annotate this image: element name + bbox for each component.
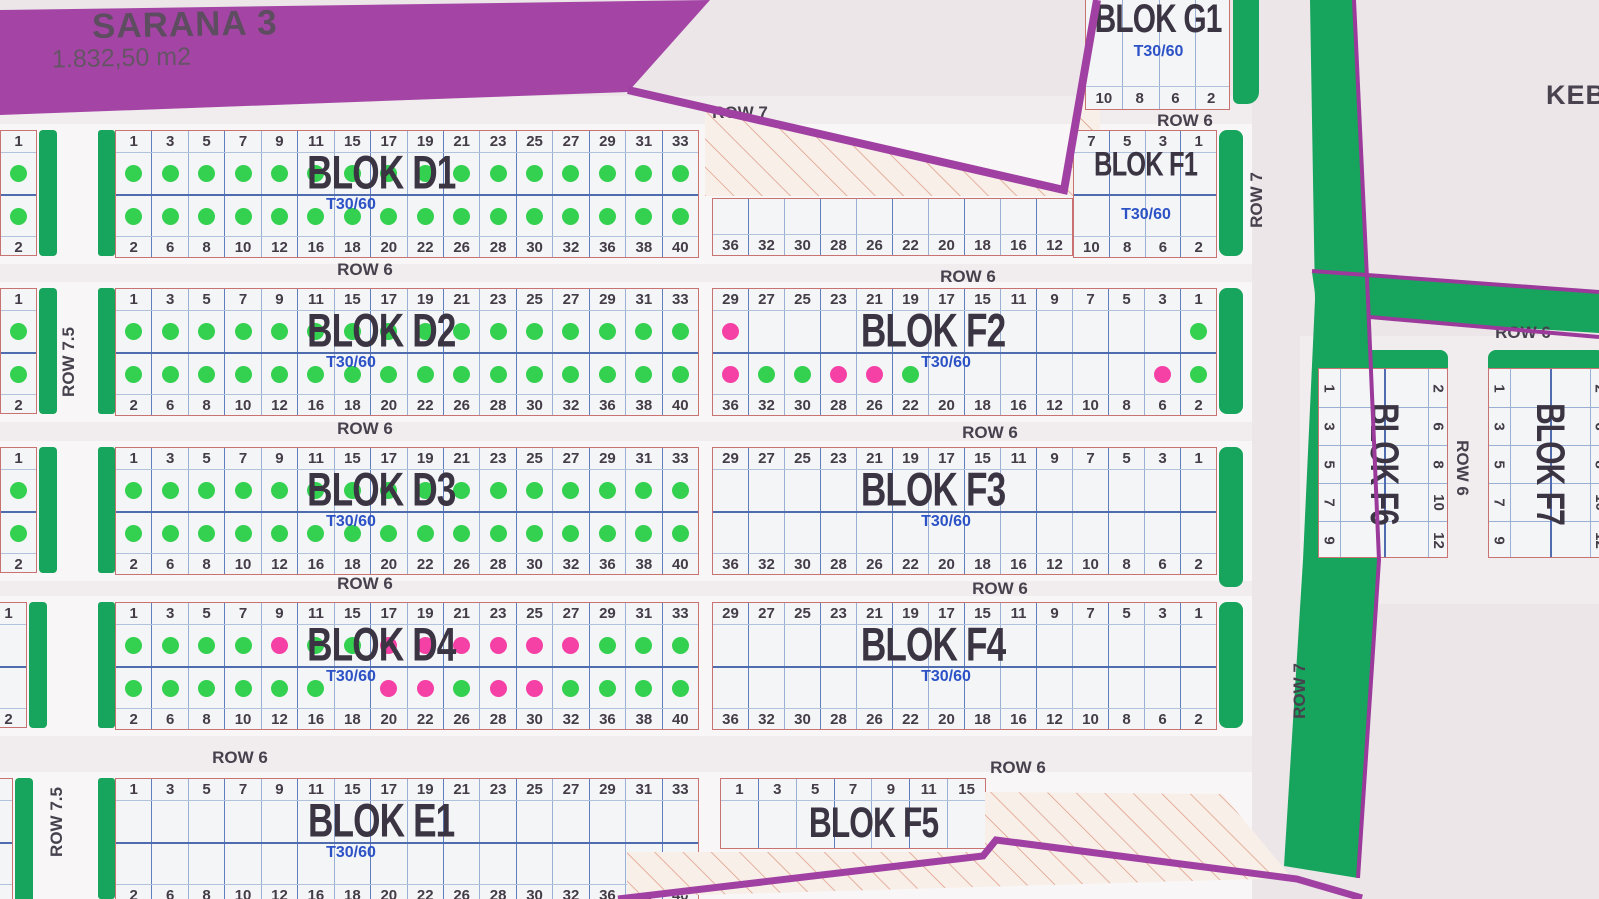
lot-cell: 27 <box>748 603 784 624</box>
lot-cell: 22 <box>892 709 928 729</box>
lot-cell <box>1108 470 1144 511</box>
lot-number: 9 <box>275 292 283 307</box>
lot-cell: 2 <box>1180 709 1216 729</box>
lot-cell: 36 <box>713 395 748 415</box>
lot-cell <box>188 354 224 394</box>
lot-cell: 2 <box>1 395 36 415</box>
lot-status-dot <box>235 208 252 225</box>
lot-status-dot <box>162 637 179 654</box>
road-strip-green <box>1488 350 1599 368</box>
lot-cell: 26 <box>856 709 892 729</box>
lot-number: 16 <box>308 398 325 413</box>
lot-cell <box>1072 668 1108 708</box>
lot-number-row: 3632302826222018161210862 <box>713 553 1216 574</box>
lot-status-dot <box>526 525 543 542</box>
lot-cell <box>1 196 36 236</box>
lot-cell <box>516 311 552 352</box>
lot-cell <box>784 668 820 708</box>
lot-cell: 2 <box>116 395 151 415</box>
lot-cell <box>662 513 698 553</box>
lot-cell: 7 <box>224 448 260 469</box>
lot-number: 33 <box>672 782 689 797</box>
block-type-label: T30/60 <box>876 514 1016 530</box>
lot-number: 30 <box>794 712 811 727</box>
lot-cell: 3 <box>151 131 187 152</box>
lot-number: 36 <box>722 398 739 413</box>
road-strip-green <box>1318 350 1448 368</box>
partial-block: 12 <box>0 447 37 573</box>
lot-cell: 10 <box>1074 237 1109 257</box>
lot-number: 1 <box>1194 451 1202 466</box>
lot-number: 25 <box>526 606 543 621</box>
lot-cell: 12 <box>1036 235 1072 255</box>
lot-number-row: 1 <box>1 131 36 152</box>
lot-cell: 5 <box>1108 603 1144 624</box>
lot-status-dot <box>599 208 616 225</box>
road-label-row6: ROW 6 <box>1452 440 1472 496</box>
lot-cell: 10 <box>224 237 260 257</box>
lot-cell: 26 <box>443 237 479 257</box>
lot-cell: 8 <box>188 395 224 415</box>
lot-number: 25 <box>794 451 811 466</box>
lot-cell: 23 <box>820 603 856 624</box>
lot-number: 21 <box>453 782 470 797</box>
lot-number: 10 <box>235 240 252 255</box>
lot-cell: 22 <box>892 395 928 415</box>
block-F7: 135792681012BLOK F7 <box>1488 368 1599 558</box>
lot-cell <box>748 199 784 234</box>
lot-cell: 28 <box>820 235 856 255</box>
lot-cell: 10 <box>1086 87 1122 109</box>
lot-cell: 18 <box>334 554 370 574</box>
lot-number: 31 <box>636 134 653 149</box>
block-D3: 1357911151719212325272931332681012161820… <box>115 447 699 575</box>
lot-dot-row <box>713 199 1072 234</box>
lot-number: 9 <box>1050 292 1058 307</box>
lot-status-dot <box>198 482 215 499</box>
lot-cell: 18 <box>334 709 370 729</box>
lot-cell: 9 <box>1036 289 1072 310</box>
lot-cell: 23 <box>479 131 515 152</box>
lot-number: 25 <box>794 606 811 621</box>
lot-number: 16 <box>1010 238 1027 253</box>
lot-cell <box>713 470 748 511</box>
lot-cell <box>856 199 892 234</box>
lot-number: 18 <box>344 888 361 899</box>
lot-number: 1 <box>4 606 12 621</box>
lot-cell <box>479 354 515 394</box>
lot-number: 28 <box>830 238 847 253</box>
lot-status-dot <box>125 525 142 542</box>
lot-number-row: 10862 <box>1086 86 1229 109</box>
lot-cell <box>1 513 36 553</box>
lot-number: 28 <box>830 712 847 727</box>
lot-cell: 20 <box>928 395 964 415</box>
lot-cell <box>1 153 36 194</box>
lot-cell: 29 <box>589 603 625 624</box>
lot-cell: 22 <box>407 554 443 574</box>
lot-cell: 2 <box>1180 237 1216 257</box>
lot-number: 12 <box>1046 238 1063 253</box>
lot-number: 2 <box>130 398 138 413</box>
lot-status-dot <box>198 165 215 182</box>
lot-cell: 40 <box>662 237 698 257</box>
lot-cell <box>443 196 479 236</box>
lot-number: 3 <box>773 782 781 797</box>
lot-cell <box>589 513 625 553</box>
lot-cell <box>784 513 820 553</box>
lot-cell: 28 <box>479 395 515 415</box>
lot-cell <box>516 196 552 236</box>
lot-number: 29 <box>599 292 616 307</box>
lot-cell: 2 <box>0 709 26 729</box>
lot-cell <box>928 199 964 234</box>
lot-cell <box>589 470 625 511</box>
lot-cell <box>1072 354 1108 394</box>
lot-cell <box>748 625 784 666</box>
lot-number: 5 <box>202 292 210 307</box>
lot-number: 1 <box>1194 606 1202 621</box>
lot-cell: 30 <box>516 237 552 257</box>
lot-number: 12 <box>271 240 288 255</box>
lot-number: 5 <box>1122 451 1130 466</box>
lot-number: 2 <box>4 712 12 727</box>
lot-cell: 7 <box>834 779 872 800</box>
block-label: BLOK D1 <box>266 153 496 193</box>
lot-number: 32 <box>563 398 580 413</box>
lot-number: 20 <box>938 557 955 572</box>
lot-cell: 33 <box>662 289 698 310</box>
lot-cell: 6 <box>151 885 187 899</box>
road-strip-green <box>98 130 115 256</box>
lot-status-dot <box>125 680 142 697</box>
lot-number: 10 <box>235 557 252 572</box>
lot-cell <box>516 470 552 511</box>
lot-cell: 8 <box>188 709 224 729</box>
lot-cell <box>1072 513 1108 553</box>
lot-cell <box>552 354 588 394</box>
lot-cell <box>784 625 820 666</box>
lot-cell: 18 <box>334 885 370 899</box>
lot-cell: 1 <box>1 289 36 310</box>
lot-cell <box>748 311 784 352</box>
lot-number: 20 <box>380 398 397 413</box>
lot-cell: 12 <box>261 395 297 415</box>
lot-cell: 32 <box>748 709 784 729</box>
lot-number: 8 <box>1122 712 1130 727</box>
lot-cell <box>443 354 479 394</box>
lot-number: 11 <box>1011 292 1027 307</box>
lot-cell <box>589 153 625 194</box>
block-G1: BLOK G1T30/6010862 <box>1085 0 1230 110</box>
lot-number: 2 <box>14 557 22 572</box>
lot-number: 2 <box>1207 91 1215 106</box>
lot-cell <box>784 354 820 394</box>
lot-status-dot <box>672 637 689 654</box>
lot-number-row: 135791115 <box>721 779 985 800</box>
lot-cell <box>224 196 260 236</box>
lot-number: 3 <box>166 451 174 466</box>
lot-cell <box>443 668 479 708</box>
lot-cell: 6 <box>151 554 187 574</box>
lot-status-dot <box>198 637 215 654</box>
lot-cell: 31 <box>625 779 661 800</box>
block-label: BLOK F4 <box>818 625 1048 665</box>
lot-cell <box>151 153 187 194</box>
lot-cell <box>748 513 784 553</box>
lot-number: 7 <box>1086 451 1094 466</box>
lot-cell <box>479 844 515 884</box>
lot-number: 6 <box>166 712 174 727</box>
lot-status-dot <box>125 323 142 340</box>
lot-number: 9 <box>275 606 283 621</box>
lot-cell: 16 <box>297 885 333 899</box>
lot-cell: 2 <box>116 709 151 729</box>
lot-cell <box>662 470 698 511</box>
partial-block: 12 <box>0 288 37 414</box>
lot-cell: 26 <box>443 554 479 574</box>
lot-status-dot <box>125 165 142 182</box>
lot-cell: 32 <box>552 709 588 729</box>
lot-cell <box>224 354 260 394</box>
lot-cell <box>713 625 748 666</box>
lot-cell <box>589 801 625 842</box>
lot-cell <box>1180 668 1216 708</box>
lot-dot-row <box>0 842 12 884</box>
lot-cell: 25 <box>784 603 820 624</box>
lot-number: 31 <box>636 606 653 621</box>
lot-cell <box>151 801 187 842</box>
block-type-label: T30/60 <box>281 197 421 213</box>
lot-number: 20 <box>380 712 397 727</box>
lot-cell <box>625 196 661 236</box>
lot-status-dot <box>162 680 179 697</box>
lot-number: 9 <box>275 134 283 149</box>
lot-cell <box>892 199 928 234</box>
lot-cell <box>516 354 552 394</box>
lot-cell <box>552 844 588 884</box>
lot-number: 36 <box>599 888 616 899</box>
block-label-text: BLOK D3 <box>307 466 455 513</box>
lot-number-row: 26810121618202226283032363840 <box>116 236 698 257</box>
lot-cell: 30 <box>784 554 820 574</box>
lot-cell <box>1036 199 1072 234</box>
lot-cell: 16 <box>1000 395 1036 415</box>
lot-number: 22 <box>417 240 434 255</box>
lot-cell <box>151 354 187 394</box>
lot-number: 10 <box>235 398 252 413</box>
road-strip-green <box>39 447 57 573</box>
lot-number: 38 <box>636 398 653 413</box>
lot-status-dot <box>562 637 579 654</box>
site-plan-map: SARANA 3 1.832,50 m2 KEB 135791115171921… <box>0 0 1599 899</box>
block-label: BLOK F3 <box>818 470 1048 510</box>
lot-cell: 30 <box>784 395 820 415</box>
lot-cell <box>721 801 758 848</box>
lot-cell: 36 <box>589 885 625 899</box>
lot-cell: 6 <box>1145 237 1181 257</box>
lot-number: 1 <box>130 292 138 307</box>
lot-number-row: 1 <box>1 448 36 469</box>
lot-number: 5 <box>811 782 819 797</box>
lot-cell: 31 <box>625 448 661 469</box>
lot-cell: 30 <box>516 709 552 729</box>
lot-number: 38 <box>636 712 653 727</box>
lot-cell: 30 <box>516 885 552 899</box>
lot-status-dot <box>830 366 847 383</box>
lot-number: 6 <box>1159 240 1167 255</box>
lot-number: 2 <box>130 712 138 727</box>
lot-cell: 22 <box>407 395 443 415</box>
lot-cell <box>748 354 784 394</box>
lot-cell: 29 <box>713 448 748 469</box>
lot-number: 1 <box>14 134 22 149</box>
lot-cell: 40 <box>662 554 698 574</box>
lot-number: 16 <box>1010 557 1027 572</box>
lot-cell <box>1036 354 1072 394</box>
lot-number-row: 26810121618202226283032363840 <box>116 708 698 729</box>
road-strip-green <box>98 602 115 728</box>
lot-cell <box>1072 311 1108 352</box>
lot-number: 38 <box>636 557 653 572</box>
lot-cell <box>964 199 1000 234</box>
lot-cell: 8 <box>1122 87 1158 109</box>
lot-number: 1 <box>130 782 138 797</box>
lot-cell: 20 <box>370 709 406 729</box>
lot-number: 12 <box>271 398 288 413</box>
lot-cell: 3 <box>1144 603 1180 624</box>
lot-number-row: 2 <box>1 394 36 415</box>
road-label-row75: ROW 7.5 <box>59 327 79 397</box>
lot-number: 9 <box>1050 606 1058 621</box>
lot-cell <box>224 844 260 884</box>
lot-number: 36 <box>599 240 616 255</box>
lot-cell <box>820 668 856 708</box>
road-strip-green <box>1219 288 1243 414</box>
lot-cell: 5 <box>188 289 224 310</box>
lot-cell: 26 <box>856 554 892 574</box>
lot-cell <box>1180 354 1216 394</box>
lot-cell: 40 <box>662 709 698 729</box>
lot-cell: 7 <box>1072 448 1108 469</box>
lot-status-dot <box>635 366 652 383</box>
lot-cell: 25 <box>516 289 552 310</box>
lot-status-dot <box>125 637 142 654</box>
lot-cell: 9 <box>871 779 909 800</box>
lot-cell: 26 <box>443 709 479 729</box>
lot-cell <box>662 354 698 394</box>
lot-cell <box>188 801 224 842</box>
lot-cell: 5 <box>1108 289 1144 310</box>
lot-cell <box>116 196 151 236</box>
lot-number: 23 <box>490 782 507 797</box>
lot-number: 18 <box>974 398 991 413</box>
lot-cell <box>1144 354 1180 394</box>
lot-number: 28 <box>830 557 847 572</box>
lot-number: 32 <box>758 557 775 572</box>
lot-number: 25 <box>526 134 543 149</box>
lot-number: 5 <box>1122 292 1130 307</box>
lot-cell <box>1144 625 1180 666</box>
lot-cell: 9 <box>261 779 297 800</box>
lot-number: 6 <box>1158 398 1166 413</box>
area-size: 1.832,50 m2 <box>52 43 192 75</box>
block-label-text: BLOK F2 <box>861 307 1005 354</box>
lot-status-dot <box>162 482 179 499</box>
lot-number: 31 <box>636 451 653 466</box>
lot-number: 1 <box>14 292 22 307</box>
lot-status-dot <box>162 323 179 340</box>
lot-cell <box>1 311 36 352</box>
lot-cell <box>662 153 698 194</box>
lot-status-dot <box>526 482 543 499</box>
lot-cell: 36 <box>589 237 625 257</box>
lot-number: 6 <box>1171 91 1179 106</box>
lot-cell: 20 <box>928 554 964 574</box>
road-label-row6: ROW 6 <box>212 748 268 768</box>
lot-number: 40 <box>672 557 689 572</box>
lot-number: 36 <box>722 238 739 253</box>
lot-status-dot <box>235 482 252 499</box>
lot-number: 36 <box>599 712 616 727</box>
road-label-row6: ROW 6 <box>962 423 1018 443</box>
lot-cell: 27 <box>552 779 588 800</box>
lot-cell <box>516 844 552 884</box>
lot-number: 32 <box>758 712 775 727</box>
road-label-row6: ROW 6 <box>337 419 393 439</box>
lot-number-row: 2 <box>1 236 36 257</box>
lot-cell: 25 <box>784 448 820 469</box>
lot-cell <box>151 470 187 511</box>
lot-cell <box>116 513 151 553</box>
lot-cell <box>625 311 661 352</box>
lot-cell: 32 <box>748 395 784 415</box>
lot-number: 10 <box>235 712 252 727</box>
block-type-label: T30/60 <box>1074 207 1218 223</box>
lot-cell: 22 <box>407 709 443 729</box>
lot-cell: 5 <box>188 603 224 624</box>
lot-number: 38 <box>636 888 653 899</box>
lot-number: 26 <box>866 712 883 727</box>
lot-cell <box>552 625 588 666</box>
lot-cell: 2 <box>116 885 151 899</box>
lot-status-dot <box>599 525 616 542</box>
lot-number: 16 <box>1010 712 1027 727</box>
block-label: BLOK F6 <box>1319 369 1449 559</box>
lot-cell: 23 <box>479 779 515 800</box>
lot-number: 26 <box>453 240 470 255</box>
lot-status-dot <box>453 208 470 225</box>
lot-cell: 6 <box>1144 395 1180 415</box>
lot-status-dot <box>635 525 652 542</box>
lot-number: 22 <box>417 888 434 899</box>
lot-cell: 22 <box>892 235 928 255</box>
lot-cell <box>0 844 12 884</box>
lot-number: 20 <box>380 557 397 572</box>
lot-number: 3 <box>1158 606 1166 621</box>
lot-number: 29 <box>599 606 616 621</box>
lot-number: 3 <box>166 782 174 797</box>
lot-status-dot <box>526 165 543 182</box>
lot-number-row: 1 <box>0 779 12 800</box>
lot-cell <box>820 354 856 394</box>
lot-number: 28 <box>490 240 507 255</box>
lot-cell: 9 <box>1036 603 1072 624</box>
lot-cell <box>589 668 625 708</box>
lot-status-dot <box>453 525 470 542</box>
block-type-label: T30/60 <box>876 669 1016 685</box>
lot-cell <box>713 513 748 553</box>
